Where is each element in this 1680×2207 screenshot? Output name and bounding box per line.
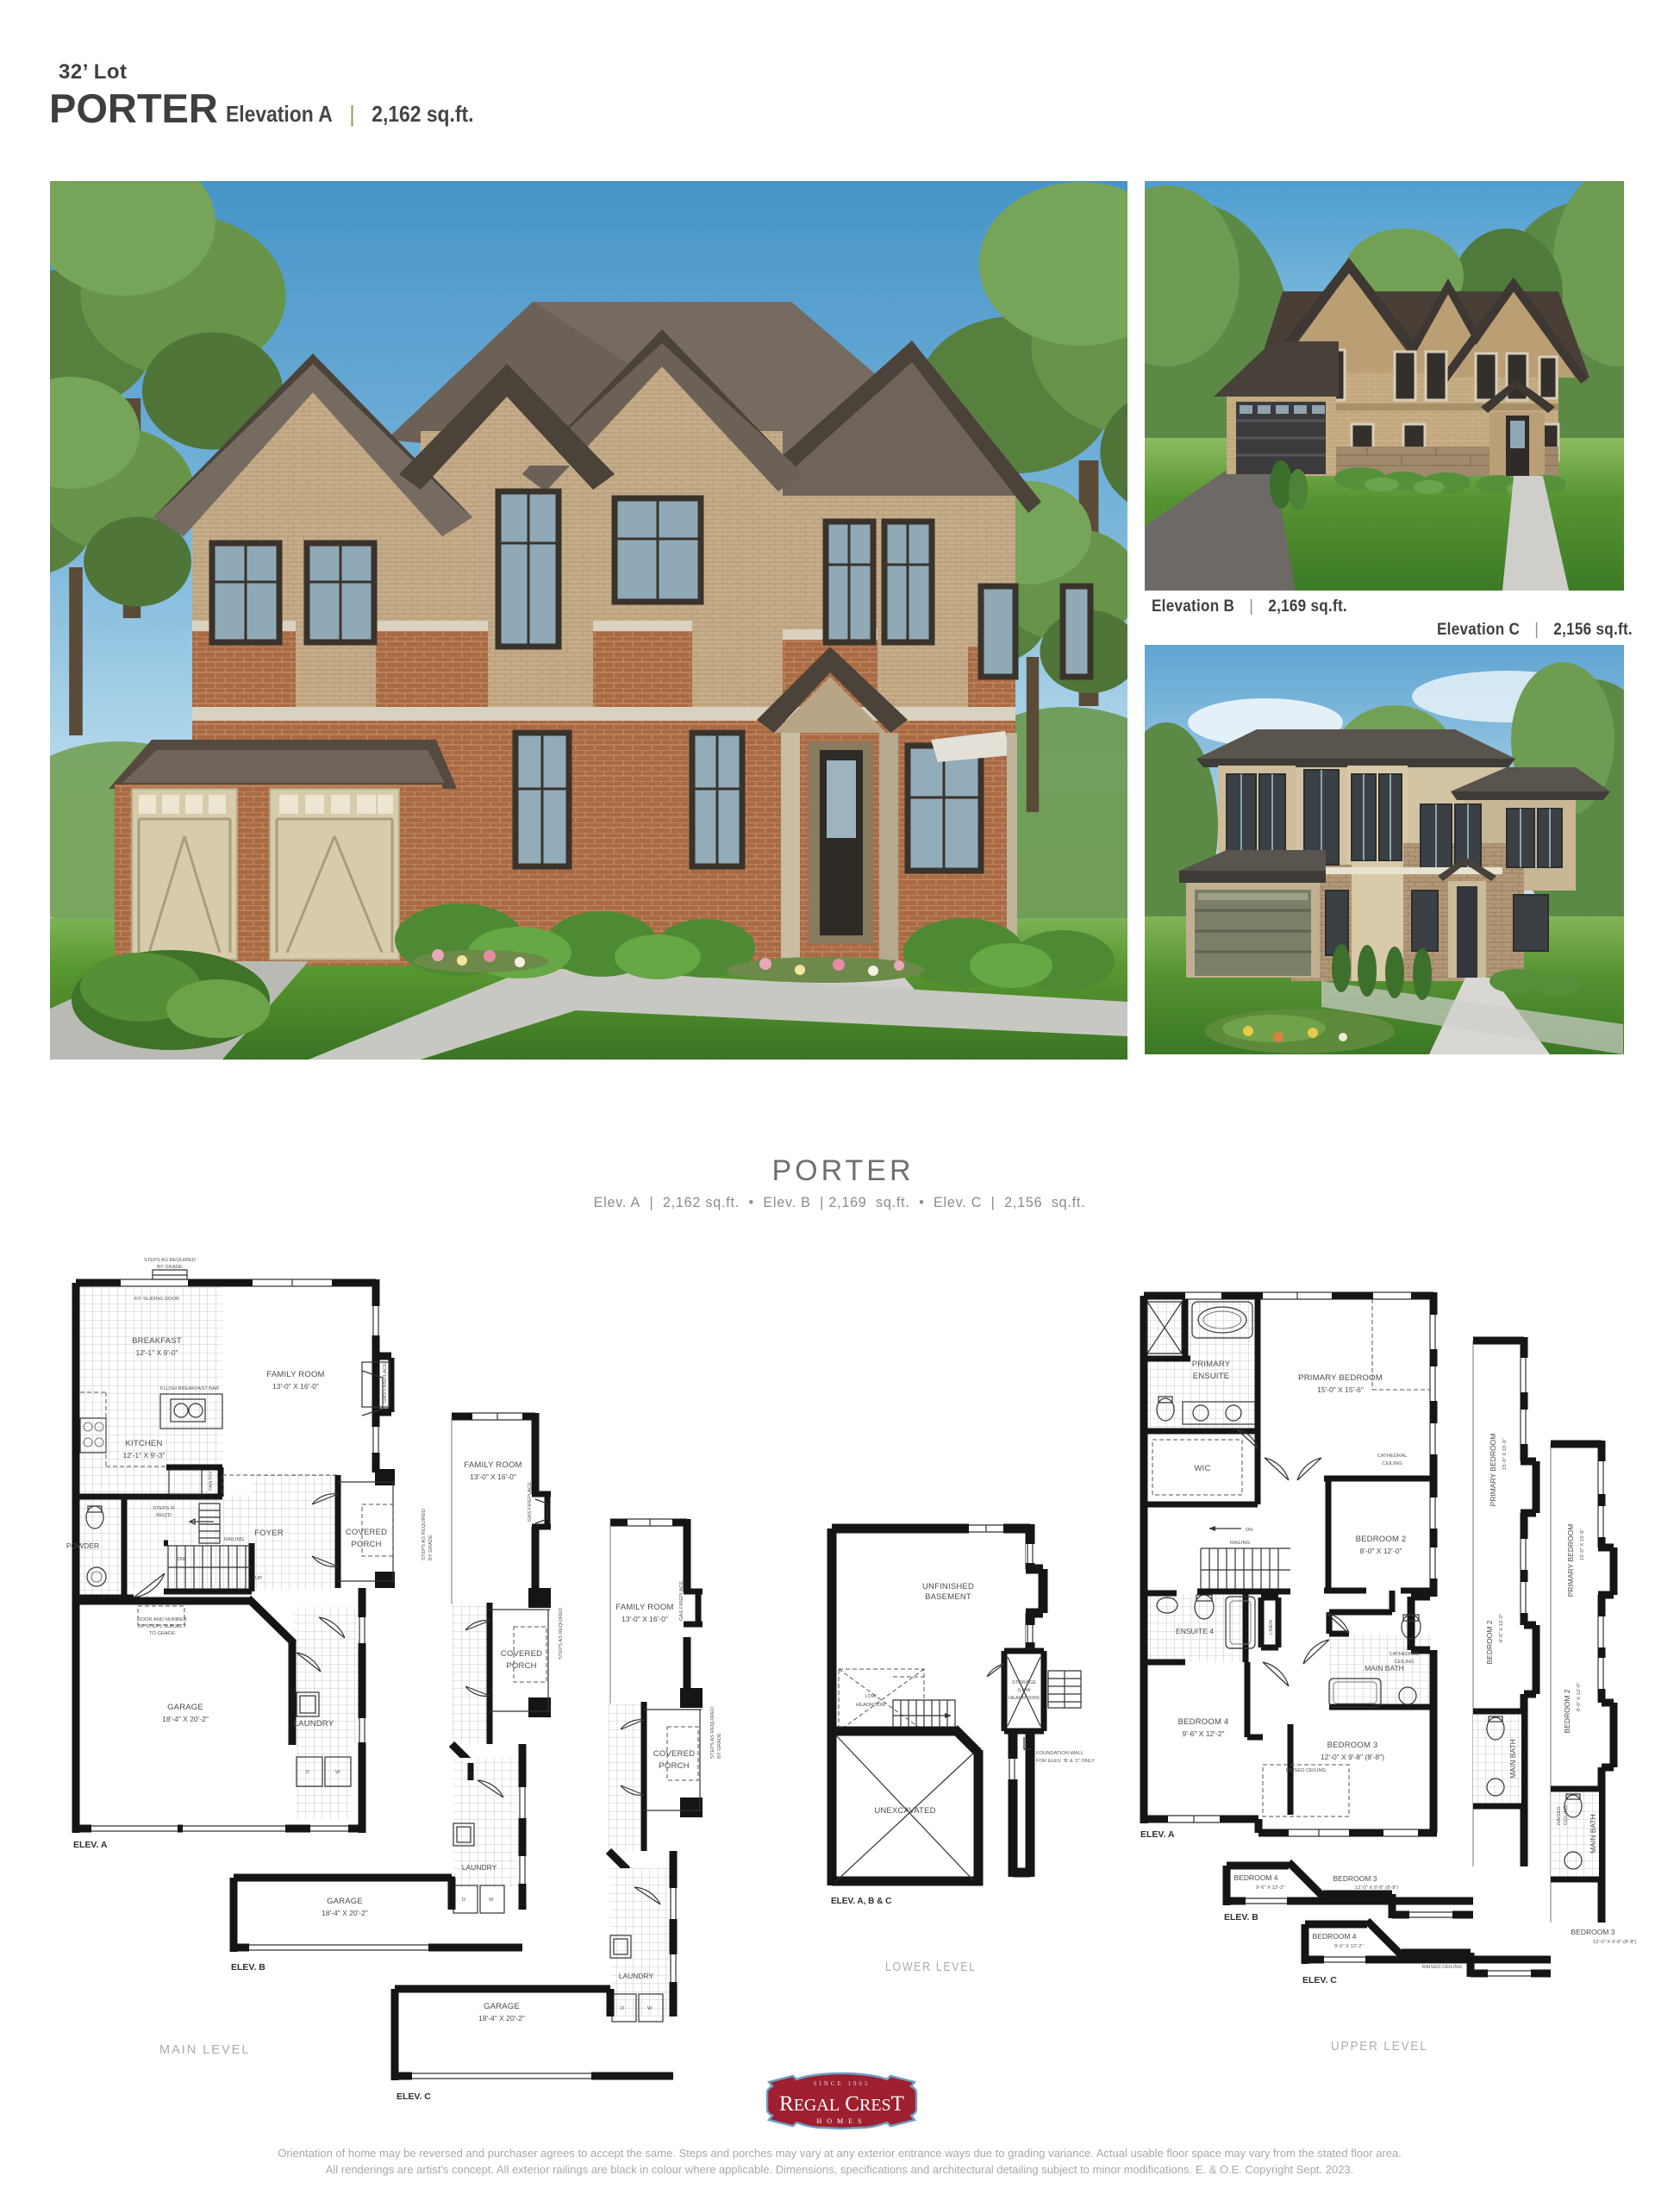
svg-text:STEPS IF: STEPS IF (153, 1506, 175, 1511)
svg-text:RAISED CEILING: RAISED CEILING (1286, 1768, 1327, 1773)
svg-text:PRIMARY BEDROOM: PRIMARY BEDROOM (1298, 1373, 1383, 1383)
svg-text:FAMILY ROOM: FAMILY ROOM (615, 1603, 673, 1612)
svg-text:POWDER: POWDER (66, 1541, 99, 1550)
svg-text:12'-0" X 9'-8" (8'-8"): 12'-0" X 9'-8" (8'-8") (1593, 1940, 1636, 1945)
svg-text:LAUNDRY: LAUNDRY (294, 1719, 334, 1729)
svg-text:ENSUITE 4: ENSUITE 4 (1176, 1627, 1214, 1635)
svg-text:LINEN: LINEN (1269, 1620, 1274, 1635)
svg-text:MAIN BATH: MAIN BATH (1508, 1739, 1517, 1779)
svg-text:HOMES: HOMES (816, 2117, 866, 2125)
svg-text:PRIMARY BEDROOM: PRIMARY BEDROOM (1566, 1524, 1575, 1597)
svg-text:(LOW: (LOW (1017, 1688, 1031, 1693)
svg-text:CATHEDRAL: CATHEDRAL (1377, 1454, 1408, 1459)
svg-text:BEDROOM 3: BEDROOM 3 (1571, 1928, 1614, 1936)
svg-text:12'-1" X 9'-0": 12'-1" X 9'-0" (136, 1348, 178, 1357)
svg-text:W: W (335, 1770, 340, 1775)
svg-text:D: D (462, 1898, 465, 1903)
svg-text:COVERED: COVERED (501, 1649, 542, 1659)
svg-text:MAIN BATH: MAIN BATH (1589, 1814, 1597, 1854)
svg-text:RAILING: RAILING (1230, 1541, 1251, 1546)
svg-text:GAS FIREPLACE: GAS FIREPLACE (679, 1581, 684, 1621)
svg-text:12'-1" X 9'-3": 12'-1" X 9'-3" (123, 1451, 166, 1460)
svg-text:13'-0" X 16'-0": 13'-0" X 16'-0" (470, 1472, 516, 1481)
svg-text:BEDROOM 2: BEDROOM 2 (1356, 1535, 1407, 1544)
svg-text:W: W (647, 2006, 653, 2011)
svg-text:CEILING: CEILING (1394, 1660, 1415, 1665)
svg-text:PRIMARY: PRIMARY (1192, 1360, 1231, 1369)
svg-text:CEILING: CEILING (1564, 1804, 1569, 1825)
svg-text:PANTRY: PANTRY (209, 1471, 214, 1491)
svg-text:STEPS AS REQUIRED: STEPS AS REQUIRED (422, 1509, 427, 1560)
svg-text:DN: DN (178, 1557, 184, 1562)
svg-text:15'-0" X 15'-6": 15'-0" X 15'-6" (1502, 1438, 1508, 1470)
svg-text:GARAGE: GARAGE (167, 1703, 203, 1712)
svg-text:FOR ELEV. 'B' & 'C' ONLY: FOR ELEV. 'B' & 'C' ONLY (1036, 1759, 1095, 1764)
svg-text:8'-0" X 12'-0": 8'-0" X 12'-0" (1360, 1547, 1402, 1555)
svg-text:PORCH: PORCH (506, 1661, 536, 1671)
svg-text:18'-4" X 20'-2": 18'-4" X 20'-2" (478, 2014, 525, 2023)
svg-text:UNEXCAVATED: UNEXCAVATED (874, 1806, 935, 1816)
svg-text:6'0' SLIDING DOOR: 6'0' SLIDING DOOR (134, 1297, 179, 1302)
svg-text:BEDROOM 4: BEDROOM 4 (1312, 1932, 1356, 1941)
svg-text:FOYER: FOYER (254, 1529, 284, 1538)
svg-text:8'-0" X 12'-0": 8'-0" X 12'-0" (1499, 1614, 1504, 1642)
svg-text:STEPS AS REQUIRED: STEPS AS REQUIRED (559, 1608, 564, 1660)
svg-text:STORAGE: STORAGE (1012, 1680, 1036, 1685)
svg-text:STEPS AS REQUIRED: STEPS AS REQUIRED (710, 1707, 715, 1759)
svg-text:BY GRADE: BY GRADE (717, 1733, 722, 1759)
svg-text:12'-0" X 9'-8" (8'-8"): 12'-0" X 9'-8" (8'-8") (1321, 1753, 1384, 1761)
svg-text:ELEV. A: ELEV. A (73, 1840, 108, 1850)
svg-text:BEDROOM 2: BEDROOM 2 (1485, 1620, 1494, 1664)
svg-text:COVERED: COVERED (653, 1749, 695, 1759)
svg-text:OF STEPS SUBJECT: OF STEPS SUBJECT (138, 1624, 187, 1629)
svg-text:15'-0" X 15'-6": 15'-0" X 15'-6" (1580, 1529, 1585, 1560)
svg-text:GAS FIREPLACE: GAS FIREPLACE (383, 1363, 388, 1403)
svg-text:HEADROOM: HEADROOM (856, 1703, 885, 1708)
svg-text:DOOR AND NUMBER: DOOR AND NUMBER (137, 1617, 187, 1622)
svg-text:ELEV. C: ELEV. C (397, 2091, 431, 2102)
svg-text:RAILING: RAILING (224, 1537, 245, 1542)
svg-text:LAUNDRY: LAUNDRY (619, 1972, 654, 1980)
svg-text:FAMILY ROOM: FAMILY ROOM (464, 1460, 521, 1470)
svg-text:BEDROOM 3: BEDROOM 3 (1327, 1741, 1378, 1750)
svg-text:BEDROOM 4: BEDROOM 4 (1233, 1873, 1277, 1882)
svg-text:9'-6" X 12'-2": 9'-6" X 12'-2" (1334, 1944, 1363, 1949)
svg-text:GARAGE: GARAGE (327, 1897, 363, 1906)
svg-text:BY GRADE: BY GRADE (157, 1265, 183, 1270)
svg-text:REQ'D: REQ'D (156, 1513, 172, 1518)
svg-text:GAS FIREPLACE: GAS FIREPLACE (528, 1482, 533, 1522)
svg-text:FAMILY ROOM: FAMILY ROOM (266, 1370, 324, 1379)
svg-text:WIC: WIC (1194, 1464, 1210, 1473)
svg-text:BY GRADE: BY GRADE (428, 1535, 434, 1560)
svg-text:UNFINISHED: UNFINISHED (922, 1582, 974, 1591)
svg-text:BEDROOM 4: BEDROOM 4 (1178, 1717, 1229, 1727)
svg-text:D: D (306, 1770, 309, 1775)
svg-text:DN: DN (1246, 1528, 1252, 1533)
svg-text:HEADROOM): HEADROOM) (1009, 1696, 1040, 1701)
svg-text:RAISED CEILING: RAISED CEILING (1422, 1965, 1463, 1970)
svg-text:COVERED: COVERED (346, 1528, 387, 1537)
svg-text:KITCHEN: KITCHEN (125, 1439, 162, 1448)
svg-text:BEDROOM 2: BEDROOM 2 (1563, 1689, 1571, 1733)
svg-text:TO GRADE: TO GRADE (149, 1631, 175, 1636)
svg-text:FOUNDATION WALL: FOUNDATION WALL (1036, 1751, 1084, 1756)
svg-text:ELEV. B: ELEV. B (231, 1962, 265, 1973)
svg-text:SINCE 1965: SINCE 1965 (814, 2080, 871, 2087)
svg-text:PRIMARY BEDROOM: PRIMARY BEDROOM (1489, 1434, 1497, 1507)
svg-text:W: W (489, 1898, 494, 1903)
svg-text:PORCH: PORCH (659, 1761, 689, 1771)
svg-text:12'-0" X 9'-8" (8'-8"): 12'-0" X 9'-8" (8'-8") (1355, 1885, 1398, 1891)
svg-text:BASEMENT: BASEMENT (925, 1592, 971, 1602)
svg-text:BREAKFAST: BREAKFAST (132, 1336, 182, 1346)
svg-text:9'-6" X 12'-2": 9'-6" X 12'-2" (1256, 1885, 1284, 1891)
svg-text:LOW: LOW (865, 1694, 877, 1699)
svg-text:15'-0" X 15'-6": 15'-0" X 15'-6" (1317, 1385, 1364, 1394)
svg-text:D: D (621, 2006, 624, 2011)
svg-text:BEDROOM 3: BEDROOM 3 (1333, 1874, 1377, 1883)
svg-text:STEPS AS REQUIRED: STEPS AS REQUIRED (144, 1258, 196, 1263)
svg-text:CEILING: CEILING (1382, 1461, 1402, 1466)
svg-text:REGAL CREST: REGAL CREST (779, 2092, 904, 2116)
svg-text:FLUSH BREAKFAST BAR: FLUSH BREAKFAST BAR (160, 1386, 219, 1391)
svg-text:ELEV. A: ELEV. A (1140, 1829, 1175, 1840)
svg-text:MAIN BATH: MAIN BATH (1365, 1664, 1404, 1672)
svg-text:RAISED: RAISED (1557, 1806, 1562, 1825)
svg-text:ELEV. B: ELEV. B (1224, 1912, 1258, 1923)
svg-text:18'-4" X 20'-2": 18'-4" X 20'-2" (322, 1909, 368, 1917)
svg-text:13'-0" X 16'-0": 13'-0" X 16'-0" (272, 1382, 319, 1391)
svg-text:ELEV. A, B & C: ELEV. A, B & C (831, 1897, 891, 1906)
svg-text:8'-0" X 12'-0": 8'-0" X 12'-0" (1577, 1683, 1582, 1711)
svg-text:GARAGE: GARAGE (484, 2002, 520, 2011)
svg-text:UP: UP (255, 1576, 262, 1581)
svg-text:PORCH: PORCH (351, 1540, 381, 1549)
svg-text:18'-4" X 20'-2": 18'-4" X 20'-2" (162, 1715, 209, 1723)
svg-text:ELEV. C: ELEV. C (1302, 1975, 1337, 1985)
svg-text:LAUNDRY: LAUNDRY (462, 1863, 497, 1872)
svg-text:13'-0" X 16'-0": 13'-0" X 16'-0" (621, 1615, 668, 1623)
svg-text:ENSUITE: ENSUITE (1193, 1372, 1230, 1381)
svg-text:CATHEDRAL: CATHEDRAL (1390, 1652, 1420, 1657)
svg-text:9'-6" X 12'-2": 9'-6" X 12'-2" (1183, 1729, 1225, 1738)
